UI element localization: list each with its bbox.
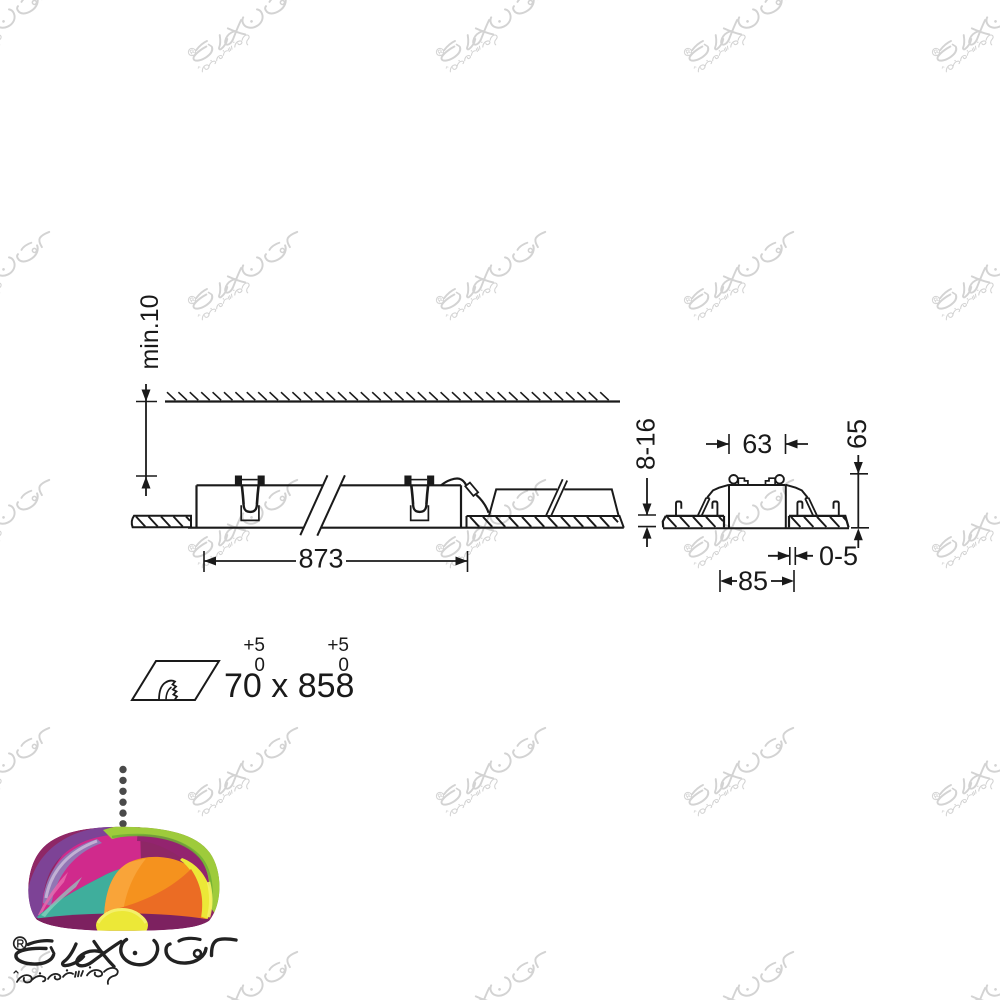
svg-text:70 x 858: 70 x 858 xyxy=(224,667,354,705)
svg-text:0-5: 0-5 xyxy=(819,541,858,571)
svg-text:0: 0 xyxy=(338,655,349,676)
svg-text:63: 63 xyxy=(742,429,772,459)
svg-text:0: 0 xyxy=(254,655,265,676)
svg-text:873: 873 xyxy=(298,544,343,574)
svg-text:min.10: min.10 xyxy=(136,294,164,369)
svg-text:+5: +5 xyxy=(243,635,265,656)
svg-text:+5: +5 xyxy=(327,635,349,656)
svg-text:65: 65 xyxy=(842,419,872,449)
svg-text:85: 85 xyxy=(738,566,768,596)
svg-text:8-16: 8-16 xyxy=(631,418,661,470)
